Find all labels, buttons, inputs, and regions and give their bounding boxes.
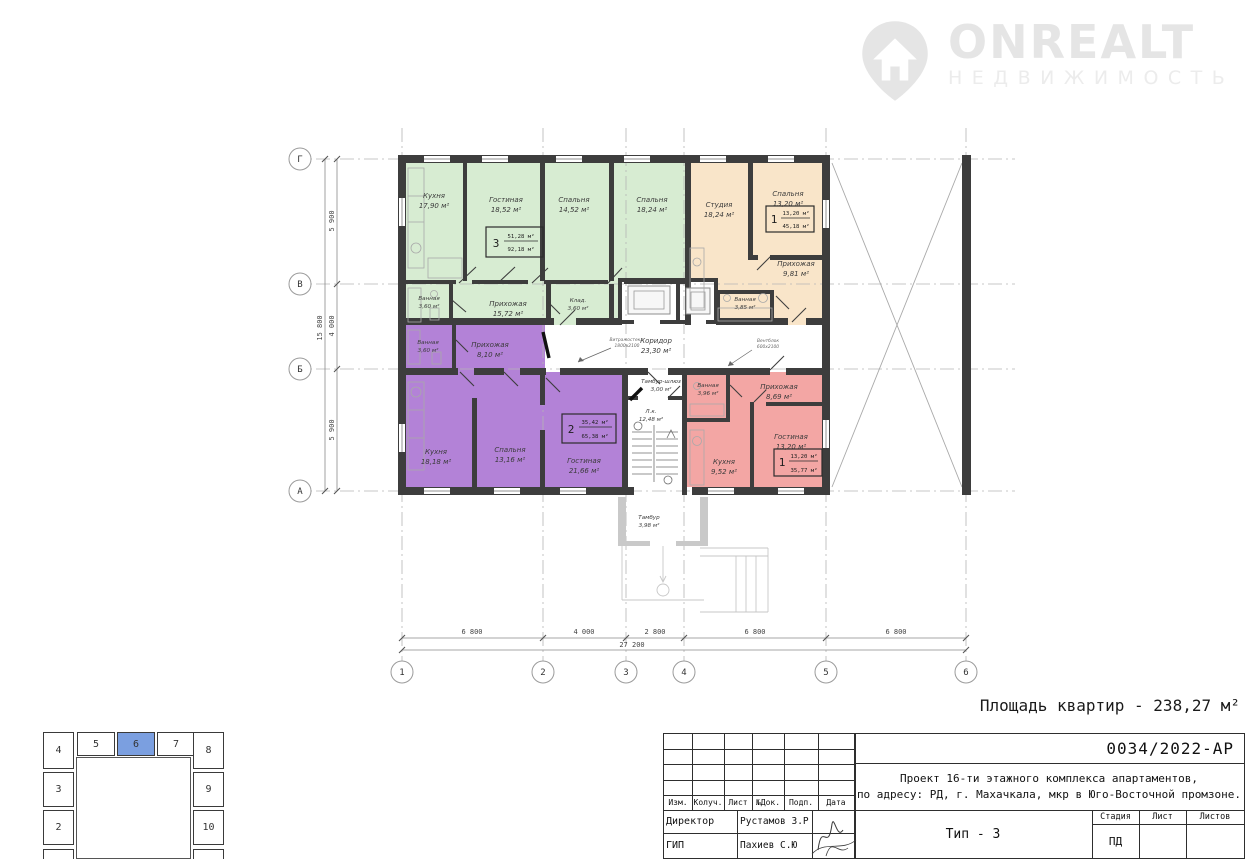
rev-header: Дата (818, 795, 854, 810)
keyplan-cell: 4 (43, 732, 74, 769)
sheet-type-label: Тип - 3 (854, 810, 1092, 858)
apartment-living-area: 51,28 м² (508, 233, 535, 240)
room-name: Коридор (640, 337, 672, 345)
keyplan-cell: 5 (77, 732, 115, 756)
entrance-tambour (618, 497, 708, 546)
callout-annotations: Витражостекл. 1800х2100 Вентблок 600х210… (578, 337, 779, 366)
room-area: 13,16 м² (495, 456, 526, 464)
room-name: Спальня (772, 190, 803, 198)
room-area: 13,20 м² (776, 443, 807, 451)
keyplan-cell-partial (43, 849, 74, 859)
apartment-total-area: 35,77 м² (791, 467, 818, 474)
apartment-living-area: 13,20 м² (791, 453, 818, 460)
axis-label: А (297, 487, 303, 497)
apartment-living-area: 35,42 м² (582, 419, 609, 426)
room-name: Ванная (734, 297, 756, 303)
room-area: 3,60 м² (419, 303, 440, 310)
room-name: Прихожая (471, 341, 509, 349)
room-area: 18,24 м² (704, 211, 735, 219)
room-area: 9,52 м² (711, 468, 737, 476)
dim-label: 6 800 (885, 628, 906, 636)
sheets-value (1186, 824, 1244, 858)
apartment-total-area: 92,18 м² (508, 246, 535, 253)
room-area: 23,30 м² (641, 347, 672, 355)
dimensions-left: 5 900 4 000 5 900 15 800 (316, 156, 340, 494)
room-area: 12,48 м² (639, 416, 664, 423)
doc-number: 0034/2022-АР (854, 734, 1244, 763)
entrance-steps-sketch (622, 546, 768, 612)
keyplan-cell-partial (193, 849, 224, 859)
room-area: 13,20 м² (773, 200, 804, 208)
apartment-number: 3 (493, 237, 500, 250)
dim-label: 5 900 (328, 210, 336, 231)
callout-text: Вентблок (757, 338, 779, 344)
rev-header: №Док. (752, 795, 784, 810)
keyplan-cell: 10 (193, 810, 224, 845)
room-name: Тамбур (638, 515, 660, 521)
axis-label: 3 (623, 668, 628, 678)
signer-role: ГИП (666, 833, 737, 858)
keyplan-cell: 8 (193, 732, 224, 769)
room-area: 3,60 м² (418, 347, 439, 354)
room-area: 3,98 м² (639, 522, 660, 529)
apartment-total-area: 65,38 м² (582, 433, 609, 440)
room-name: Гостиная (489, 196, 523, 204)
apartment-number: 2 (568, 423, 575, 436)
room-area: 18,24 м² (637, 206, 668, 214)
future-section-cross (832, 163, 962, 487)
rev-header: Изм. (664, 795, 692, 810)
callout-text: 1800х2100 (615, 343, 640, 349)
room-name: Кухня (423, 192, 445, 200)
room-name: Ванная (697, 383, 719, 389)
room-name: Спальня (636, 196, 667, 204)
axis-label: 1 (399, 668, 404, 678)
axis-label: 6 (963, 668, 968, 678)
dim-label: 6 800 (744, 628, 765, 636)
room-area: 17,90 м² (419, 202, 450, 210)
room-name: Спальня (494, 446, 525, 454)
room-name: Ванная (417, 340, 439, 346)
room-name: Ванная (418, 296, 440, 302)
axis-label: Г (297, 155, 302, 165)
room-name: Спальня (558, 196, 589, 204)
room-name: Кухня (713, 458, 735, 466)
sheet-header: Лист (1139, 810, 1186, 824)
apartment-living-area: 13,20 м² (783, 210, 810, 217)
dim-total-label: 27 200 (619, 641, 644, 649)
signer-name: Пахиев С.Ю (740, 833, 812, 858)
room-area: 14,52 м² (559, 206, 590, 214)
room-area: 15,72 м² (493, 310, 524, 318)
project-description-line1: Проект 16-ти этажного комплекса апартаме… (900, 771, 1198, 787)
keyplan-cell: 3 (43, 772, 74, 807)
axis-label: 4 (681, 668, 686, 678)
room-area: 3,96 м² (698, 390, 719, 397)
room-area: 21,66 м² (569, 467, 600, 475)
apartment-number: 1 (779, 456, 786, 469)
rev-header: Колуч. (692, 795, 724, 810)
dim-label: 6 800 (461, 628, 482, 636)
axis-label: В (297, 280, 302, 290)
keyplan-cell: 7 (157, 732, 195, 756)
room-name: Прихожая (777, 260, 815, 268)
keyplan-cell: 2 (43, 810, 74, 845)
dim-label: 4 000 (328, 315, 336, 336)
floor-plan: 6 800 4 000 2 800 6 800 6 800 27 200 5 9… (0, 0, 1253, 859)
room-name: Л.к. (644, 409, 656, 415)
project-description-line2: по адресу: РД, г. Махачкала, мкр в Юго-В… (857, 787, 1241, 803)
signature (808, 810, 860, 858)
dim-label: 5 900 (328, 419, 336, 440)
stage-value: ПД (1092, 824, 1139, 858)
sheet-value (1139, 824, 1186, 858)
title-block: Изм. Колуч. Лист №Док. Подп. Дата Директ… (663, 733, 1245, 859)
dim-total-label: 15 800 (316, 315, 324, 340)
callout-text: 600х2100 (757, 344, 779, 350)
room-area: 3,85 м² (735, 304, 756, 311)
sheets-header: Листов (1186, 810, 1244, 824)
room-name: Клад. (570, 298, 587, 304)
room-area: 8,10 м² (477, 351, 503, 359)
room-name: Гостиная (567, 457, 601, 465)
apartment-number: 1 (771, 213, 778, 226)
room-name: Прихожая (760, 383, 798, 391)
stage-header: Стадия (1092, 810, 1139, 824)
room-name: Кухня (425, 448, 447, 456)
keyplan-cell: 9 (193, 772, 224, 807)
room-area: 18,18 м² (421, 458, 452, 466)
dim-label: 4 000 (573, 628, 594, 636)
axis-label: 5 (823, 668, 828, 678)
room-area: 9,81 м² (783, 270, 809, 278)
room-name: Студия (706, 201, 733, 209)
room-area: 3,60 м² (568, 305, 589, 312)
room-area: 18,52 м² (491, 206, 522, 214)
signer-role: Директор (666, 810, 737, 833)
apartment-total-area: 45,18 м² (783, 223, 810, 230)
rev-header: Подп. (784, 795, 818, 810)
room-name: Гостиная (774, 433, 808, 441)
signer-name: Рустамов З.Р (740, 810, 812, 833)
rev-header: Лист (724, 795, 752, 810)
room-name: Тамбур-шлюз (641, 379, 681, 385)
axis-label: 2 (540, 668, 545, 678)
keyplan-cell-highlighted: 6 (117, 732, 155, 756)
room-area: 8,69 м² (766, 393, 792, 401)
dim-label: 2 800 (644, 628, 665, 636)
axis-bubbles-left (289, 148, 311, 502)
room-area: 3,00 м² (651, 386, 672, 393)
axis-label: Б (297, 365, 302, 375)
callout-text: Витражостекл. (609, 337, 644, 343)
room-name: Прихожая (489, 300, 527, 308)
